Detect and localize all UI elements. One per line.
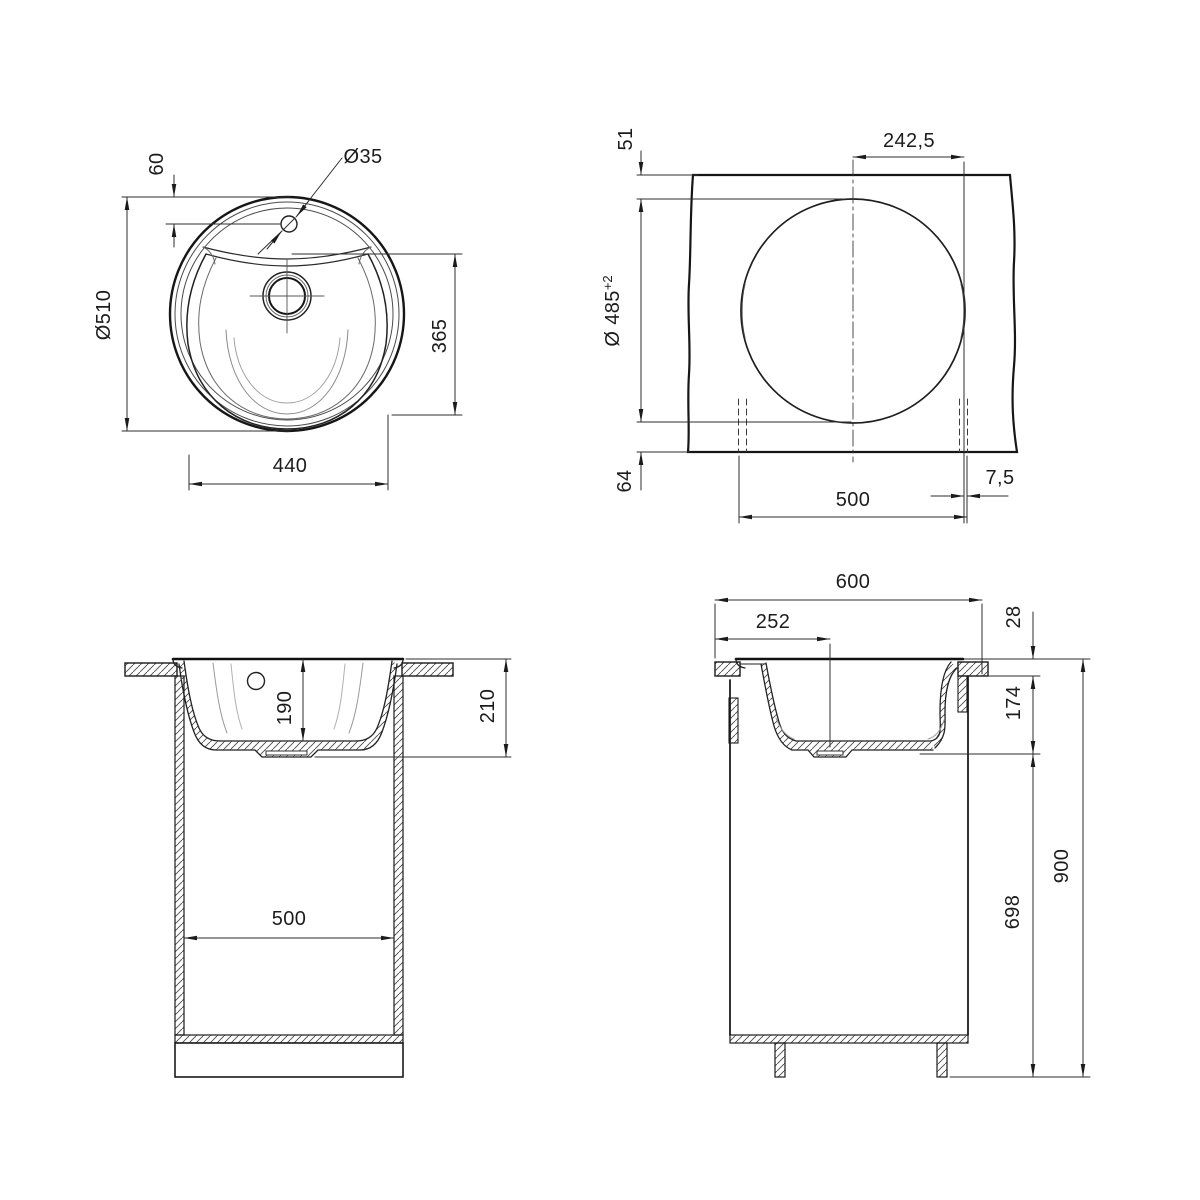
cutout-view-drawing: [637, 151, 1017, 523]
dim-bowl-bottom-offset: 174: [1004, 686, 1024, 721]
dim-cabinet-width-cutout: 500: [836, 490, 871, 510]
dim-bowl-length: 365: [430, 319, 450, 354]
dim-cutout-tolerance: +2: [600, 275, 615, 290]
dim-bowl-width: 440: [273, 456, 308, 476]
technical-drawing-canvas: [0, 0, 1200, 1200]
dim-cutout-to-front: 64: [615, 469, 635, 492]
dim-overall-depth: 210: [478, 689, 498, 724]
dim-rim-height: 28: [1004, 605, 1024, 628]
dim-edge-to-cutout: 51: [616, 127, 636, 150]
technical-drawing-page: 60 Ø35 Ø510 365 440 51 242,5 Ø 485+2 64 …: [0, 0, 1200, 1200]
dim-worktop-height: 900: [1052, 849, 1072, 884]
dim-cabinet-inner-width: 500: [272, 909, 307, 929]
dim-drain-offset: 252: [756, 612, 791, 632]
dim-overall-diameter: Ø510: [94, 290, 114, 341]
dim-faucet-hole-diameter: Ø35: [343, 147, 382, 167]
dim-side-clearance: 7,5: [985, 468, 1014, 488]
dim-cutout-diameter-value: Ø 485: [602, 290, 624, 346]
dim-faucet-offset: 60: [147, 152, 167, 175]
dim-bowl-depth: 190: [275, 691, 295, 726]
top-view-drawing: [122, 158, 462, 490]
dim-counter-depth: 600: [836, 572, 871, 592]
dim-underbowl-height: 698: [1003, 895, 1023, 930]
front-section-drawing: [125, 659, 511, 1077]
side-section-drawing: [715, 600, 1090, 1077]
dim-center-to-edge: 242,5: [883, 131, 935, 151]
dim-cutout-diameter: Ø 485+2: [601, 275, 623, 346]
